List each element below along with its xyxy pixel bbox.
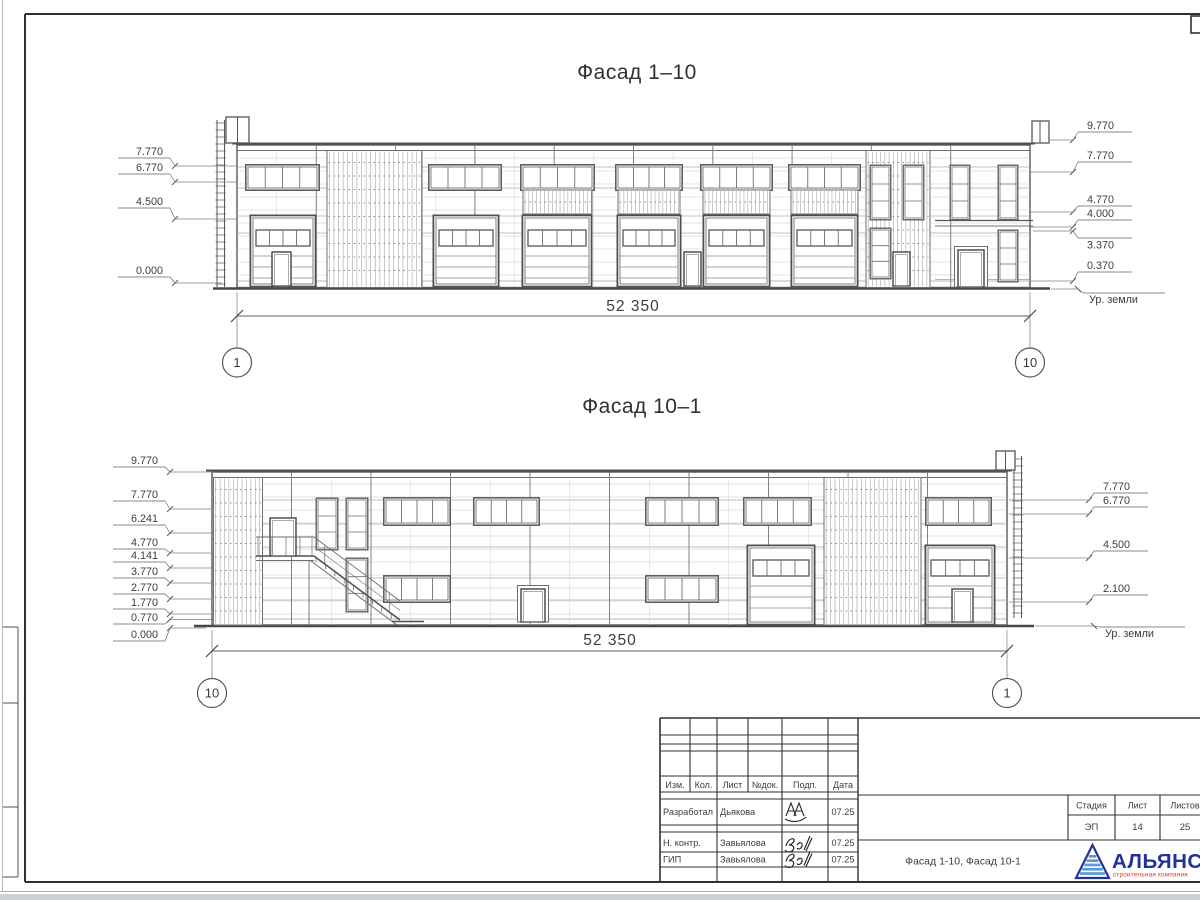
label: Ур. земли [1089,294,1138,306]
elevation-value: 6.241 [131,513,158,525]
elevation-value: 4.770 [131,537,158,549]
signature-icon [785,852,812,868]
elevation-mark: 3.770 [113,566,214,586]
elevation-mark: 4.500 [1009,539,1148,561]
elevation-mark: 2.100 [1009,583,1148,605]
dimension-value: 52 350 [583,632,636,649]
rect [523,190,592,214]
rect [1000,232,1016,280]
axis-number: 1 [1003,686,1010,701]
elevation-value: 7.770 [1087,150,1114,162]
line [165,562,170,568]
logo-stripe [1089,855,1097,858]
rect [905,167,922,218]
tb-role: Разработал [663,807,713,817]
signature-icon [785,836,812,852]
rect [706,218,767,284]
elevation-value: 3.370 [1087,240,1114,252]
background-edge [0,894,1200,900]
tb-date: 07.25 [832,838,855,848]
tb-date: 07.25 [832,855,855,865]
ground-level-mark: Ур. земли [1035,623,1185,640]
elevation-value: 4.141 [131,550,158,562]
tb-date: 07.25 [832,807,855,817]
elevation-mark: 0.000 [118,265,222,286]
tb-col-ndok: №док. [752,780,778,790]
tb-col-data: Дата [833,780,853,790]
line [170,158,175,166]
logo-stripe [1080,872,1105,875]
rect [525,218,589,284]
line [1073,231,1078,238]
rect [952,589,973,622]
elevation-mark: 9.770 [113,455,214,475]
elevation-value: 4.770 [1087,194,1114,206]
elevation-mark: 0.370 [1031,260,1132,284]
rect [521,589,545,622]
tb-col-kol: Кол. [695,780,713,790]
elevation-value: 7.770 [1103,481,1130,493]
elevation-value: 6.770 [136,162,163,174]
rect [272,252,291,286]
elevation-mark: 7.770 [1031,150,1132,175]
rect [318,500,336,548]
elevation-mark: 4.770 [1031,194,1132,215]
elevation-mark: 6.241 [113,513,214,536]
signature-path [785,852,812,868]
elevation-value: 2.770 [131,582,158,594]
line [165,549,170,553]
line [170,277,175,283]
line [165,501,170,509]
signature-icon [785,803,806,821]
elevation-mark: 1.770 [113,597,214,617]
logo-stripe [1087,859,1099,862]
elevation-mark: 7.770 [113,489,214,512]
elevation-value: 9.770 [1087,120,1114,132]
rect [824,478,921,626]
tb-col-list: Лист [723,780,743,790]
tb-doc-title: Фасад 1-10, Фасад 10-1 [905,856,1021,868]
tb-col-podp: Подп. [793,780,817,790]
elevation-value: 4.500 [1103,539,1130,551]
rect [872,167,889,218]
line [165,578,170,583]
facade-10-1-view: Фасад 10–19.7707.7706.2414.7704.1413.770… [113,395,1185,708]
tb-name: Дьякова [720,807,756,817]
elevation-value: 2.100 [1103,583,1130,595]
rect [794,218,855,284]
rect [1000,167,1016,218]
elevation-mark: 0.000 [113,625,206,641]
facade-1-10-view: Фасад 1–107.7706.7704.5000.0009.7707.770… [118,61,1165,377]
tb-col-izm: Изм. [665,780,684,790]
facade2-title: Фасад 10–1 [582,395,702,418]
elevation-value: 4.000 [1087,208,1114,220]
drawing-sheet: Фасад 1–107.7706.7704.5000.0009.7707.770… [0,0,1200,900]
line [165,594,170,599]
axis-number: 1 [233,355,240,370]
rect [1191,16,1200,33]
tb-sheet-label: Лист [1128,801,1148,811]
elevation-value: 3.770 [131,566,158,578]
elevation-value: 0.770 [131,612,158,624]
rect [872,230,889,277]
line [165,609,170,614]
axis-number: 10 [205,686,219,701]
elevation-mark: 4.000 [1031,208,1132,230]
axis-number: 10 [1023,355,1037,370]
line [165,467,170,472]
exterior-stair [256,518,424,625]
logo-stripe [1082,868,1103,871]
line [1073,162,1078,172]
tb-sheets-label: Листов [1170,801,1199,811]
elevation-value: 7.770 [131,489,158,501]
rect [750,548,812,622]
rect [348,500,366,548]
company-name: АЛЬЯНС [1112,850,1200,873]
rect [436,218,496,284]
tb-role: Н. контр. [663,838,701,848]
elevation-value: 7.770 [136,146,163,158]
elevation-mark: 3.370 [1033,228,1132,252]
tb-name: Завьялова [720,855,767,865]
elevation-value: 0.000 [136,265,163,277]
tb-role: ГИП [663,855,681,865]
line [170,208,175,219]
elevation-value: 0.000 [131,629,158,641]
rect [952,167,968,218]
elevation-mark: 2.770 [113,582,214,602]
tb-stage-value: ЭП [1085,822,1099,833]
line [165,525,170,533]
elevation-mark: 6.770 [118,162,238,185]
tb-name: Завьялова [720,838,767,848]
elevation-mark: 4.770 [113,537,214,556]
elevation-value: 1.770 [131,597,158,609]
label: Ур. земли [1105,628,1154,640]
rect [348,560,366,610]
elevation-mark: 6.770 [1009,495,1148,517]
sheet-frame [0,0,1200,900]
tb-sheet-number: 14 [1132,822,1143,833]
rect [620,218,678,284]
company-subtitle: строительная компания [1113,872,1188,879]
elevation-value: 9.770 [131,455,158,467]
facade1-title: Фасад 1–10 [577,61,697,84]
ground-level-mark: Ур. земли [1051,286,1165,306]
line [170,174,175,182]
elevation-value: 4.500 [136,196,163,208]
tb-sheets-total: 25 [1180,822,1191,833]
elevation-value: 0.370 [1087,260,1114,272]
logo-stripe [1084,864,1100,867]
company-logo [1076,845,1109,878]
title-block: Изм.Кол.Лист№док.Подп.ДатаРазработалДьяк… [660,718,1200,882]
elevation-value: 6.770 [1103,495,1130,507]
tb-stage-label: Стадия [1076,801,1107,811]
elevation-mark: 9.770 [1050,120,1132,143]
dimension-value: 52 350 [606,298,659,315]
rect [958,250,984,287]
